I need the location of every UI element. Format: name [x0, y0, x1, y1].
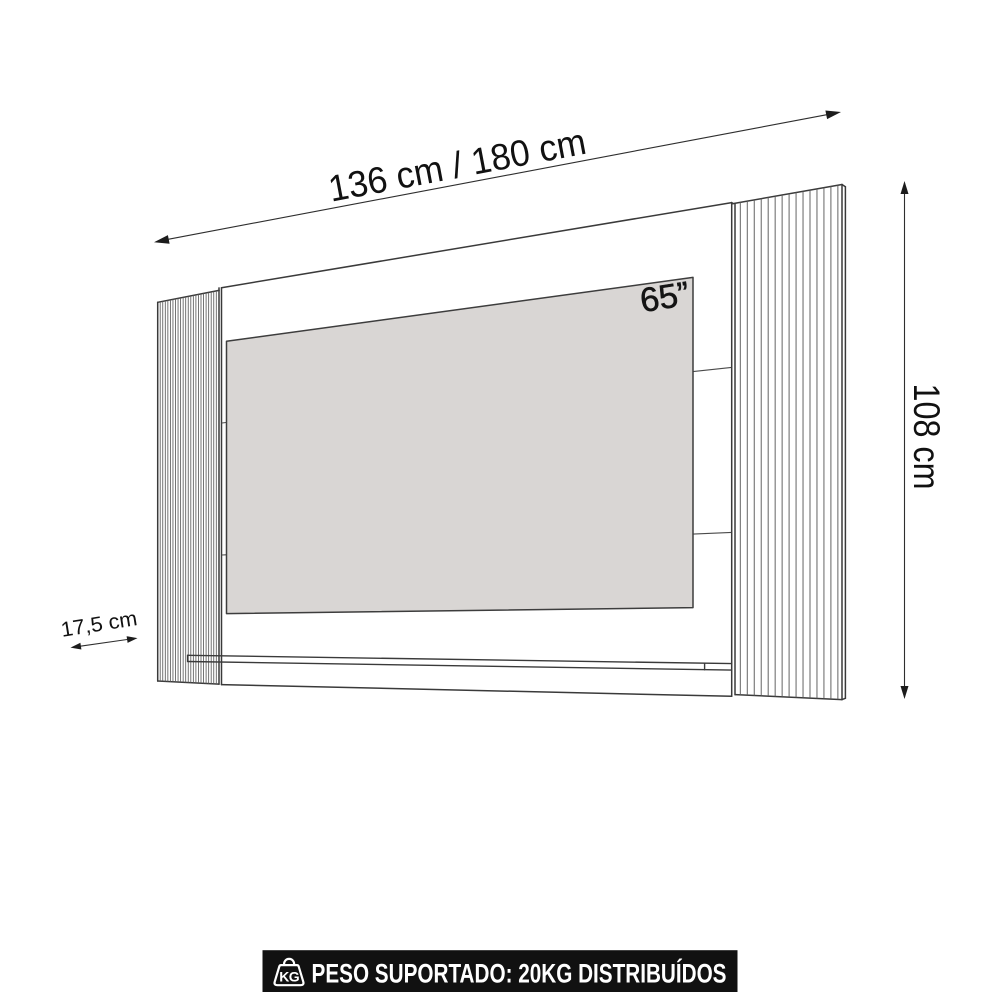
svg-text:KG: KG: [279, 969, 300, 985]
svg-text:108 cm: 108 cm: [906, 384, 947, 490]
svg-text:65”: 65”: [637, 275, 691, 320]
svg-text:PESO SUPORTADO: 20KG DISTRIBUÍ: PESO SUPORTADO: 20KG DISTRIBUÍDOS: [312, 958, 727, 989]
